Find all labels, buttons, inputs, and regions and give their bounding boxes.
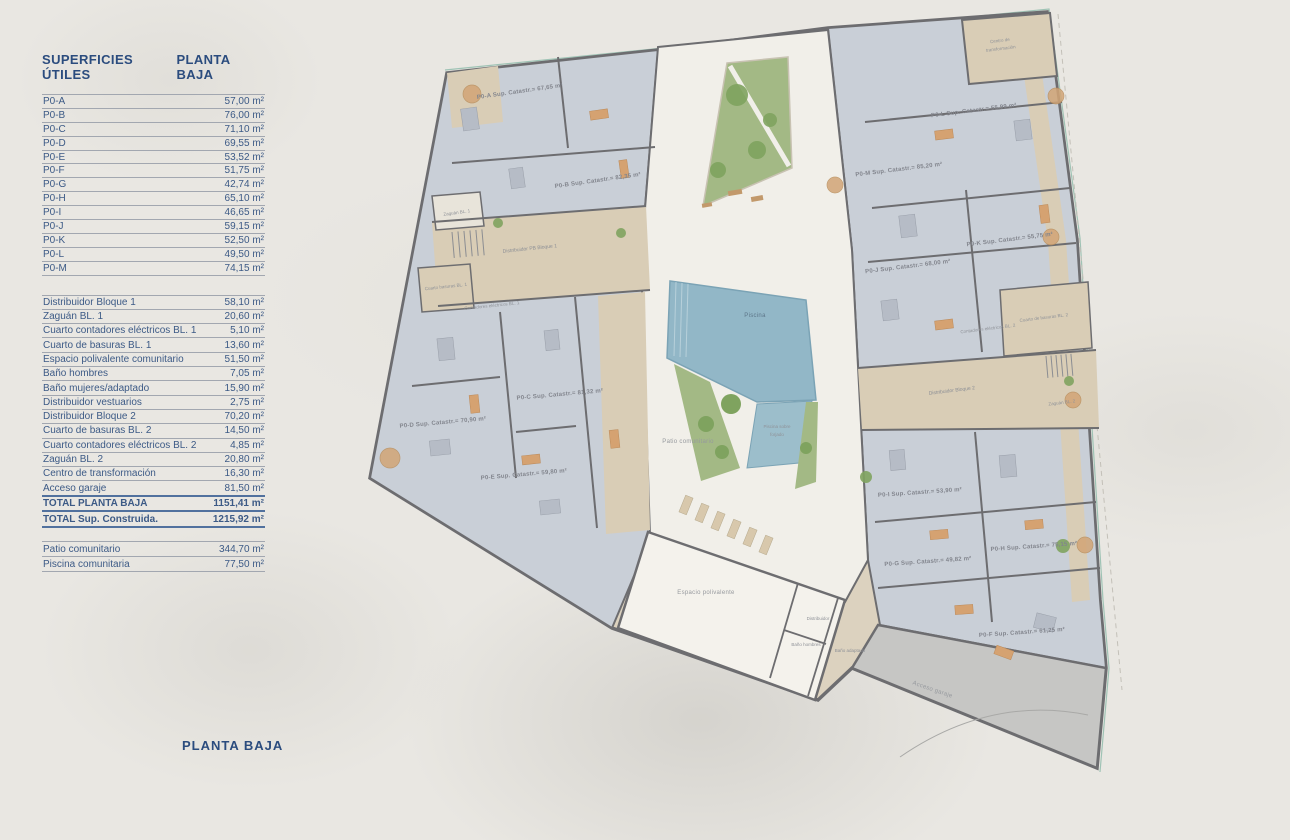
multipurpose-label: Espacio polivalente — [677, 590, 735, 596]
raised-pool-label-1: Piscina sobre — [763, 424, 791, 429]
patio-label: Patio comunitario — [662, 439, 714, 445]
floor-plan: P0-A Sup. Catastr.= 67,65 m² P0-B Sup. C… — [0, 0, 1290, 840]
pool-label: Piscina — [744, 313, 766, 319]
page: { "sidebar": { "title_left": "SUPERFICIE… — [0, 0, 1290, 840]
distribuidor-aseos-label: Distribuidor — [807, 616, 830, 621]
bano-adaptado-label: Baño adaptado — [835, 648, 866, 653]
raised-pool-label-2: forjado — [770, 432, 784, 437]
bano-hombres-label: Baño hombres — [791, 642, 821, 647]
